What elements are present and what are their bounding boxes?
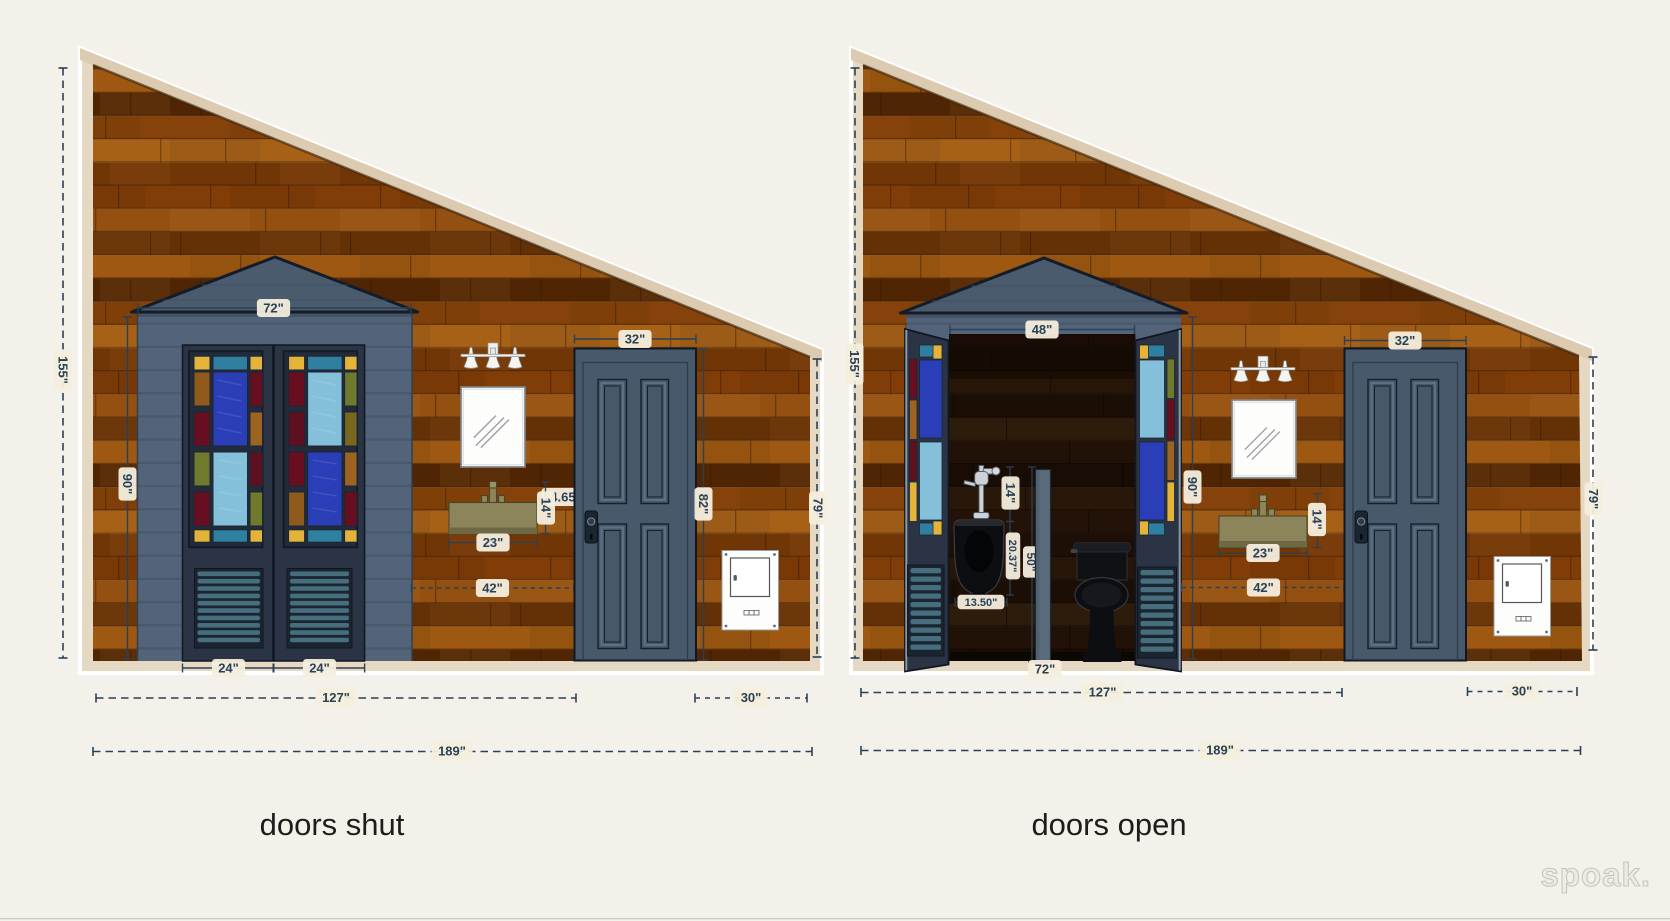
svg-text:14": 14" [538, 498, 553, 519]
svg-text:42": 42" [482, 581, 503, 596]
svg-text:23": 23" [1253, 546, 1274, 561]
svg-text:14": 14" [1003, 483, 1018, 504]
svg-text:spoak.: spoak. [1540, 856, 1651, 893]
svg-text:30": 30" [1512, 684, 1533, 699]
svg-text:189": 189" [438, 744, 466, 759]
svg-text:42": 42" [1253, 580, 1274, 595]
svg-text:32": 32" [1395, 333, 1416, 348]
svg-text:72": 72" [263, 301, 284, 316]
svg-text:14": 14" [1309, 509, 1324, 530]
svg-text:20.37": 20.37" [1006, 540, 1018, 573]
svg-text:doors shut: doors shut [260, 807, 405, 842]
svg-text:155": 155" [847, 350, 862, 378]
svg-text:24": 24" [218, 661, 239, 676]
svg-text:127": 127" [1089, 685, 1117, 700]
svg-text:82": 82" [696, 494, 711, 515]
svg-text:30": 30" [741, 690, 762, 705]
svg-text:155": 155" [55, 356, 70, 384]
svg-text:32": 32" [625, 332, 646, 347]
svg-text:13.50": 13.50" [965, 597, 998, 609]
svg-text:24": 24" [309, 661, 330, 676]
svg-text:72": 72" [1035, 662, 1056, 677]
svg-text:79": 79" [810, 498, 825, 519]
svg-text:doors open: doors open [1031, 807, 1186, 842]
svg-text:23": 23" [483, 535, 504, 550]
svg-text:189": 189" [1206, 743, 1234, 758]
svg-text:90": 90" [120, 474, 135, 495]
svg-text:127": 127" [322, 690, 350, 705]
svg-text:48": 48" [1032, 322, 1053, 337]
svg-text:90": 90" [1185, 477, 1200, 498]
svg-text:79": 79" [1586, 489, 1601, 510]
